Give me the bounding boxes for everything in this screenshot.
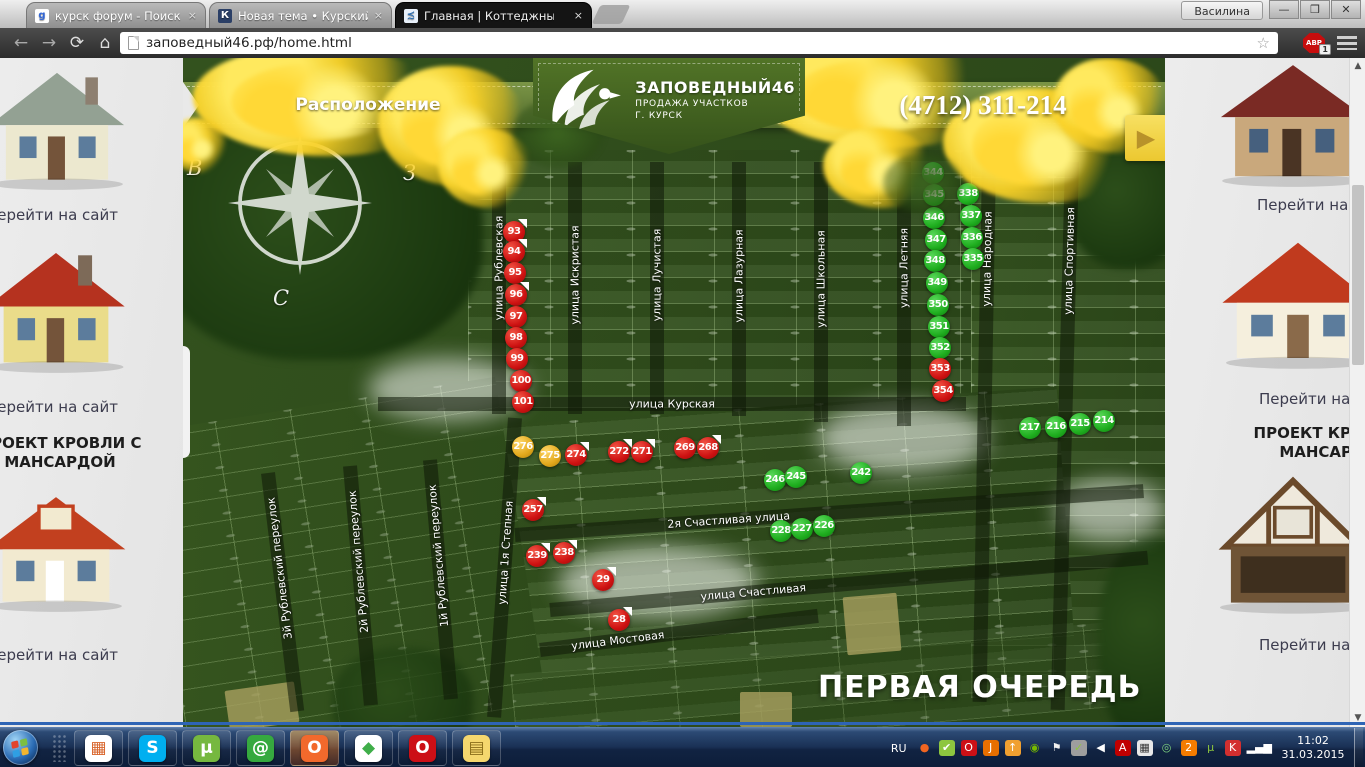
file-explorer-icon: ▤ — [463, 735, 490, 762]
plot-marker-336[interactable]: 336 — [961, 227, 983, 249]
scrollbar-thumb[interactable] — [1352, 185, 1364, 365]
go-to-site-link[interactable]: Перейти на сайт — [1259, 390, 1349, 408]
plot-marker-217[interactable]: 217 — [1019, 417, 1041, 439]
heading-line: МАНСАРДОЙ — [1225, 443, 1349, 462]
tray-keyboard-icon[interactable]: ▦ — [1137, 740, 1153, 756]
plot-marker-276[interactable]: 276 — [512, 436, 534, 458]
plot-map: улица Рублевскаяулица Искристаяулица Луч… — [183, 58, 1165, 727]
new-tab-button[interactable] — [592, 5, 631, 24]
plot-marker-351[interactable]: 351 — [928, 316, 950, 338]
tab-label: курск форум - Поиск в G — [55, 9, 182, 23]
nav-location-link[interactable]: Расположение — [243, 95, 493, 115]
browser-titlebar: g курск форум - Поиск в G × К Новая тема… — [0, 0, 1365, 28]
corner-flag-icon — [541, 543, 550, 552]
refresh-button[interactable]: ⟳ — [64, 31, 90, 55]
corner-flag-icon — [518, 239, 527, 248]
plot-marker-29[interactable]: 29 — [592, 569, 614, 591]
tray-opera-icon[interactable]: O — [961, 740, 977, 756]
tray-usb-device-icon[interactable]: ✓ — [1071, 740, 1087, 756]
tray-adobe-reader-icon[interactable]: A — [1115, 740, 1131, 756]
plot-marker-226[interactable]: 226 — [813, 515, 835, 537]
plot-marker-353[interactable]: 353 — [929, 358, 951, 380]
dirt-plot — [843, 593, 902, 655]
corner-flag-icon — [518, 219, 527, 228]
plot-marker-245[interactable]: 245 — [785, 466, 807, 488]
plot-marker-99[interactable]: 99 — [506, 348, 528, 370]
clock-time: 11:02 — [1277, 734, 1349, 748]
tab-close-icon[interactable]: × — [188, 9, 197, 22]
street-name-label: улица Школьная — [815, 230, 828, 328]
plot-marker-242[interactable]: 242 — [850, 462, 872, 484]
plot-marker-275[interactable]: 275 — [539, 445, 561, 467]
window-border — [0, 722, 1365, 725]
sims-icon: ◆ — [355, 735, 382, 762]
street: улица Школьная — [814, 162, 828, 422]
street: улица Лучистая — [650, 162, 664, 414]
taskbar-grip — [52, 734, 66, 762]
go-to-site-link[interactable]: Перейти на сайт — [1259, 636, 1349, 654]
browser-toolbar: ← → ⟳ ⌂ заповедный46.рф/home.html ☆ ABP … — [0, 28, 1365, 58]
phase-label: ПЕРВАЯ ОЧЕРЕДЬ — [818, 670, 1163, 705]
bookmark-star-icon[interactable]: ☆ — [1257, 34, 1270, 52]
plot-marker-216[interactable]: 216 — [1045, 416, 1067, 438]
screen: g курск форум - Поиск в G × К Новая тема… — [0, 0, 1365, 767]
clock-date: 31.03.2015 — [1277, 748, 1349, 762]
taskbar-origin-button[interactable]: O — [290, 730, 339, 766]
origin-icon: O — [301, 735, 328, 762]
street-name-label: улица Лазурная — [733, 230, 746, 323]
heading-line: ПРОЕКТ КРОВЛИ С — [0, 434, 175, 453]
tray-updater-icon[interactable]: ✔ — [939, 740, 955, 756]
adblock-badge: 1 — [1319, 44, 1331, 55]
app-launcher-icon: ▦ — [85, 735, 112, 762]
show-desktop-button[interactable] — [1354, 728, 1363, 767]
plot-marker-337[interactable]: 337 — [960, 205, 982, 227]
taskbar-sims-button[interactable]: ◆ — [344, 730, 393, 766]
plot-marker-238[interactable]: 238 — [553, 542, 575, 564]
language-indicator[interactable]: RU — [886, 739, 912, 758]
plot-marker-100[interactable]: 100 — [510, 370, 532, 392]
corner-flag-icon — [580, 442, 589, 451]
close-button[interactable]: ✕ — [1331, 0, 1361, 19]
next-arrow-button[interactable]: ▶ — [1125, 115, 1165, 161]
corner-flag-icon — [537, 497, 546, 506]
plot-marker-97[interactable]: 97 — [505, 306, 527, 328]
tab-label: Главная | Коттеджный по — [424, 9, 554, 23]
tray-network-signal-icon[interactable]: ▂▄▆ — [1247, 740, 1272, 756]
taskbar-skype-button[interactable]: S — [128, 730, 177, 766]
plot-marker-268[interactable]: 268 — [697, 437, 719, 459]
roof-project-heading: ПРОЕКТ КРОВЛИ С МАНСАРДОЙ — [0, 434, 175, 472]
plot-marker-28[interactable]: 28 — [608, 609, 630, 631]
forum-favicon: К — [218, 9, 232, 23]
plot-marker-335[interactable]: 335 — [962, 248, 984, 270]
tab-forum[interactable]: К Новая тема • Курский Фо × — [209, 2, 392, 28]
taskbar: ▦Sµ@O◆O▤ RU ●✔OJ↑◉⚑✓◀A▦◎2µK▂▄▆ 11:02 31.… — [0, 727, 1365, 767]
page-icon — [128, 36, 139, 50]
plot-marker-227[interactable]: 227 — [791, 518, 813, 540]
street-name-label: улица Курская — [629, 398, 715, 411]
plot-marker-96[interactable]: 96 — [505, 284, 527, 306]
corner-flag-icon — [646, 439, 655, 448]
plot-marker-269[interactable]: 269 — [674, 437, 696, 459]
plot-marker-352[interactable]: 352 — [929, 337, 951, 359]
left-banner-column: Перейти на сайт Перейти на сайт ПРОЕКТ К… — [0, 58, 183, 727]
house-banner-image — [0, 488, 130, 613]
browser-menu-icon[interactable] — [1337, 36, 1357, 50]
address-bar[interactable]: заповедный46.рф/home.html ☆ — [120, 32, 1278, 54]
tray-kaspersky-icon[interactable]: K — [1225, 740, 1241, 756]
corner-flag-icon — [712, 435, 721, 444]
plot-marker-95[interactable]: 95 — [504, 262, 526, 284]
house-banner-image — [0, 66, 132, 191]
tray-volume-icon[interactable]: ◀ — [1093, 740, 1109, 756]
heading-line: ПРОЕКТ КРОВЛИ С — [1225, 424, 1349, 443]
page-scrollbar[interactable]: ▲ ▼ — [1349, 58, 1365, 727]
house-banner-image — [1217, 238, 1349, 370]
corner-flag-icon — [623, 439, 632, 448]
minimize-button[interactable]: — — [1269, 0, 1299, 19]
leaf-cluster — [883, 153, 963, 213]
plot-marker-347[interactable]: 347 — [925, 229, 947, 251]
google-favicon: g — [35, 9, 49, 23]
system-tray: RU ●✔OJ↑◉⚑✓◀A▦◎2µK▂▄▆ 11:02 31.03.2015 — [886, 728, 1365, 767]
corner-flag-icon — [520, 282, 529, 291]
street-name-label: улица Летняя — [898, 227, 911, 307]
corner-flag-icon — [607, 567, 616, 576]
go-to-site-link[interactable]: Перейти на сайт — [0, 206, 118, 224]
plot-marker-271[interactable]: 271 — [631, 441, 653, 463]
taskbar-clock[interactable]: 11:02 31.03.2015 — [1277, 734, 1349, 762]
tab-search[interactable]: g курск форум - Поиск в G × — [26, 2, 206, 28]
taskbar-app-launcher-button[interactable]: ▦ — [74, 730, 123, 766]
plot-marker-239[interactable]: 239 — [526, 545, 548, 567]
tray-java-icon[interactable]: J — [983, 740, 999, 756]
street: улица Лазурная — [732, 162, 746, 416]
plot-marker-350[interactable]: 350 — [927, 294, 949, 316]
start-button[interactable] — [3, 730, 38, 765]
page-content: Перейти на сайт Перейти на сайт ПРОЕКТ К… — [0, 58, 1365, 727]
tab-home-active[interactable]: ≾ Главная | Коттеджный по × — [395, 2, 592, 28]
opera-icon: O — [409, 735, 436, 762]
tray-nvidia-icon[interactable]: ◉ — [1027, 740, 1043, 756]
roof-project-heading: ПРОЕКТ КРОВЛИ С МАНСАРДОЙ — [1225, 424, 1349, 462]
url-text: заповедный46.рф/home.html — [146, 35, 352, 51]
go-to-site-link[interactable]: Перейти на сайт — [1257, 196, 1349, 214]
tray-origin-icon[interactable]: ● — [917, 740, 933, 756]
utorrent-icon: µ — [193, 735, 220, 762]
taskbar-mailru-agent-button[interactable]: @ — [236, 730, 285, 766]
back-button[interactable]: ← — [8, 31, 34, 55]
compass-letter-south: С — [273, 286, 289, 310]
street-name-label: улица Искристая — [569, 226, 582, 325]
tab-label: Новая тема • Курский Фо — [238, 9, 368, 23]
pinned-apps: ▦Sµ@O◆O▤ — [74, 729, 501, 767]
street-name-label: улица Спортивная — [1062, 207, 1078, 315]
tray-utorrent-icon[interactable]: µ — [1203, 740, 1219, 756]
street: улица Искристая — [568, 162, 582, 414]
plot-marker-101[interactable]: 101 — [512, 391, 534, 413]
plot-marker-257[interactable]: 257 — [522, 499, 544, 521]
skype-icon: S — [139, 735, 166, 762]
windows-logo-icon — [11, 738, 29, 758]
house-banner-image — [1213, 58, 1349, 188]
corner-flag-icon — [568, 540, 577, 549]
forward-button[interactable]: → — [36, 31, 62, 55]
plot-marker-228[interactable]: 228 — [770, 520, 792, 542]
right-banner-column: Перейти на сайт Перейти на сайт ПРОЕКТ К… — [1165, 58, 1349, 727]
taskbar-utorrent-button[interactable]: µ — [182, 730, 231, 766]
plot-marker-94[interactable]: 94 — [503, 241, 525, 263]
plot-marker-348[interactable]: 348 — [924, 250, 946, 272]
street-name-label: улица Лучистая — [651, 229, 664, 322]
go-to-site-link[interactable]: Перейти на сайт — [0, 398, 118, 416]
heading-line: МАНСАРДОЙ — [0, 453, 175, 472]
tray-avast-icon[interactable]: 2 — [1181, 740, 1197, 756]
compass-rose: В З С — [225, 128, 375, 313]
home-button[interactable]: ⌂ — [92, 31, 118, 55]
taskbar-opera-button[interactable]: O — [398, 730, 447, 766]
tab-close-icon[interactable]: × — [374, 9, 383, 22]
restore-button[interactable]: ❒ — [1300, 0, 1330, 19]
plot-marker-274[interactable]: 274 — [565, 444, 587, 466]
profile-button[interactable]: Василина — [1181, 1, 1263, 20]
plot-marker-246[interactable]: 246 — [764, 469, 786, 491]
house-banner-image — [0, 246, 132, 374]
tray-eye-icon[interactable]: ◎ — [1159, 740, 1175, 756]
phone-number: (4712) 311-214 — [838, 90, 1128, 121]
scroll-up-arrow[interactable]: ▲ — [1350, 58, 1365, 75]
plot-marker-349[interactable]: 349 — [926, 272, 948, 294]
corner-flag-icon — [623, 607, 632, 616]
house-banner-image — [1213, 476, 1349, 616]
tray-icons: ●✔OJ↑◉⚑✓◀A▦◎2µK▂▄▆ — [917, 740, 1272, 756]
plot-marker-354[interactable]: 354 — [932, 380, 954, 402]
go-to-site-link[interactable]: Перейти на сайт — [0, 646, 118, 664]
panel-edge — [183, 346, 190, 458]
tray-action-center-flag-icon[interactable]: ⚑ — [1049, 740, 1065, 756]
plot-marker-215[interactable]: 215 — [1069, 413, 1091, 435]
taskbar-file-explorer-button[interactable]: ▤ — [452, 730, 501, 766]
street: улица Курская — [378, 397, 966, 411]
mailru-agent-icon: @ — [247, 735, 274, 762]
tab-close-icon[interactable]: × — [574, 9, 583, 22]
plot-marker-98[interactable]: 98 — [505, 327, 527, 349]
window-controls: — ❒ ✕ — [1268, 0, 1361, 19]
plot-marker-214[interactable]: 214 — [1093, 410, 1115, 432]
tray-uploader-icon[interactable]: ↑ — [1005, 740, 1021, 756]
plot-marker-272[interactable]: 272 — [608, 441, 630, 463]
site-favicon: ≾ — [404, 9, 418, 23]
